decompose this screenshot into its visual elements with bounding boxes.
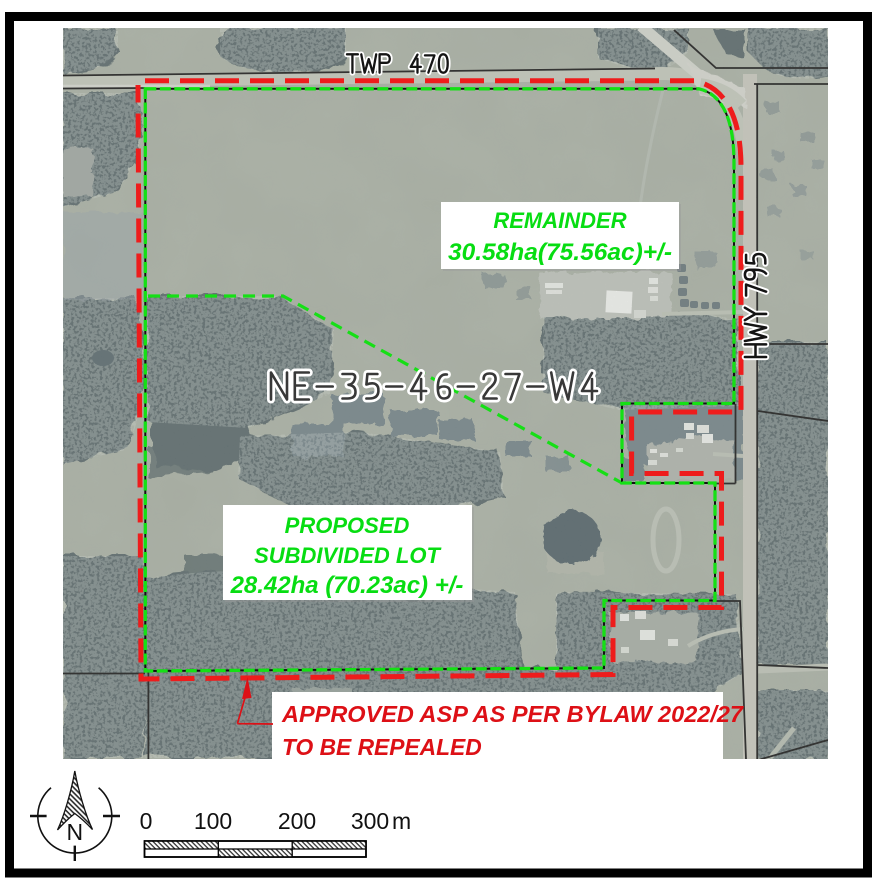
- svg-text:30.58ha(75.56ac)+/-: 30.58ha(75.56ac)+/-: [448, 239, 672, 266]
- svg-text:APPROVED ASP AS PER BYLAW 2022: APPROVED ASP AS PER BYLAW 2022/27: [281, 701, 744, 727]
- svg-text:200: 200: [278, 808, 316, 834]
- svg-text:0: 0: [140, 808, 153, 834]
- svg-text:N: N: [66, 819, 83, 845]
- svg-text:SUBDIVIDED LOT: SUBDIVIDED LOT: [254, 543, 441, 568]
- svg-text:28.42ha (70.23ac) +/-: 28.42ha (70.23ac) +/-: [230, 572, 464, 599]
- svg-text:m: m: [392, 808, 411, 834]
- svg-text:300: 300: [351, 808, 389, 834]
- svg-text:REMAINDER: REMAINDER: [493, 208, 626, 233]
- svg-text:TO BE REPEALED: TO BE REPEALED: [282, 734, 482, 760]
- svg-text:PROPOSED: PROPOSED: [285, 513, 410, 538]
- svg-text:100: 100: [194, 808, 232, 834]
